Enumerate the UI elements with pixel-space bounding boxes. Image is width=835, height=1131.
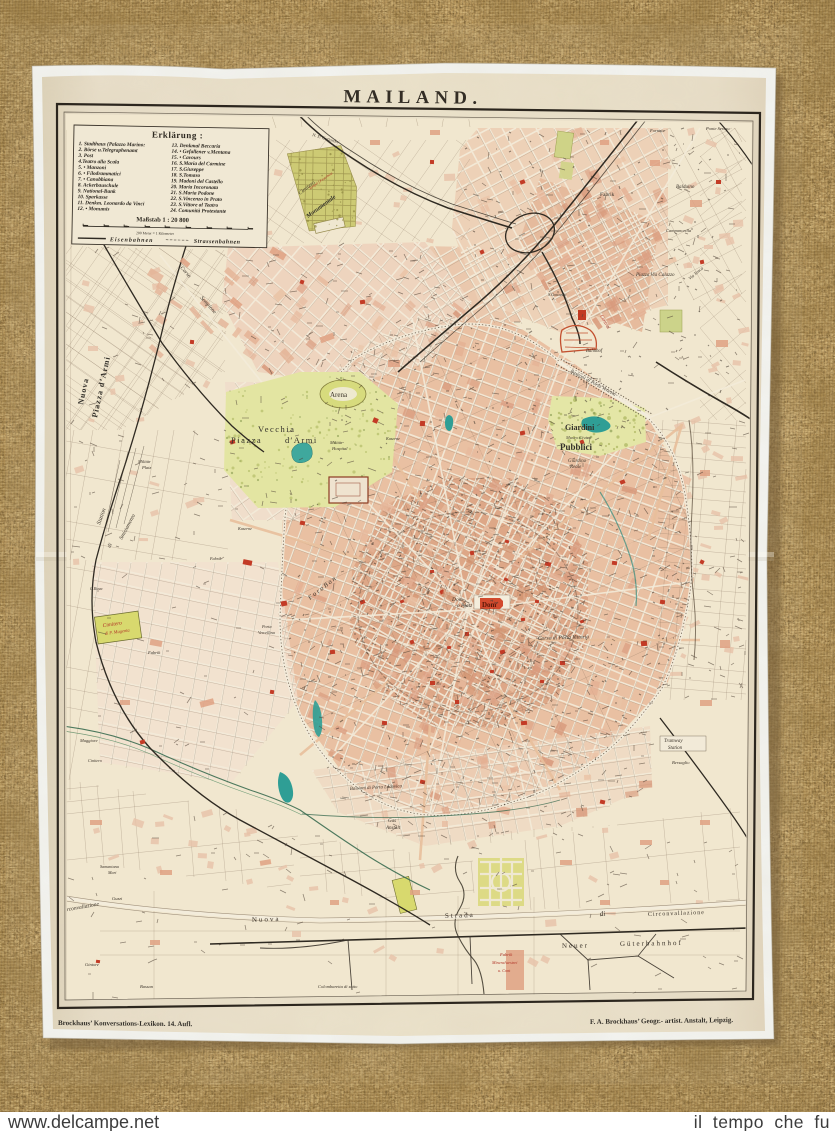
svg-text:Militär: Militär — [137, 459, 151, 464]
svg-text:MAILAND.: MAILAND. — [343, 87, 482, 109]
svg-text:Colombaretta di sotto: Colombaretta di sotto — [318, 984, 358, 989]
svg-text:www.delcampe.net: www.delcampe.net — [7, 1112, 159, 1131]
svg-text:Maßstab 1 : 20 800: Maßstab 1 : 20 800 — [136, 216, 189, 224]
svg-text:Kaserne: Kaserne — [385, 436, 400, 441]
svg-text:Mari: Mari — [107, 870, 117, 875]
svg-text:Strada: Strada — [445, 911, 475, 920]
svg-text:Fabrik: Fabrik — [147, 650, 161, 655]
svg-text:Mineralwestrei: Mineralwestrei — [491, 960, 518, 965]
svg-text:Brockhaus’ Konversations-Lexik: Brockhaus’ Konversations-Lexikon. 14. Au… — [58, 1019, 193, 1028]
svg-text:Militär-: Militär- — [329, 440, 345, 445]
svg-text:C.Rova: C.Rova — [90, 586, 102, 591]
svg-text:Erklärung :: Erklärung : — [152, 129, 203, 140]
svg-text:Balduino: Balduino — [676, 185, 695, 190]
svg-text:12. • Monumis: 12. • Monumis — [77, 206, 109, 213]
svg-text:il tempo che fu: il tempo che fu — [694, 1112, 830, 1131]
svg-text:Kaserne: Kaserne — [237, 526, 252, 531]
svg-text:Fabrik: Fabrik — [499, 952, 513, 957]
svg-text:Giardino: Giardino — [568, 459, 587, 464]
svg-text:Ponte Sereso: Ponte Sereso — [705, 126, 730, 131]
svg-text:Gintore: Gintore — [85, 962, 99, 967]
svg-text:S.Gottardo: S.Gottardo — [548, 292, 566, 297]
svg-text:Bersaglio: Bersaglio — [672, 760, 690, 765]
svg-text:Strassenbahnen: Strassenbahnen — [194, 239, 241, 246]
svg-text:Nuova: Nuova — [252, 915, 281, 924]
svg-text:Platz: Platz — [141, 465, 151, 470]
svg-text:Campanorilla: Campanorilla — [666, 228, 692, 233]
svg-text:Tramway: Tramway — [664, 739, 683, 744]
svg-text:d'Armi: d'Armi — [285, 435, 318, 445]
svg-text:Reale: Reale — [569, 465, 582, 470]
svg-text:Giardini: Giardini — [565, 423, 595, 432]
svg-text:24. Comunità Protestante: 24. Comunità Protestante — [169, 208, 227, 215]
svg-text:u. Cont: u. Cont — [498, 968, 511, 973]
svg-text:Pubblici: Pubblici — [560, 442, 593, 452]
svg-text:Hospital: Hospital — [331, 446, 348, 451]
svg-text:Bahnhof: Bahnhof — [586, 349, 603, 354]
svg-text:Cinitero: Cinitero — [88, 758, 102, 763]
svg-text:Maggiore: Maggiore — [79, 738, 98, 743]
svg-text:Neuer: Neuer — [562, 942, 589, 950]
svg-text:Fabrik: Fabrik — [209, 556, 222, 561]
svg-text:Piazza Via Calazzo: Piazza Via Calazzo — [635, 273, 675, 278]
svg-text:Fabrik: Fabrik — [600, 192, 615, 198]
svg-text:Guzzi: Guzzi — [112, 896, 123, 901]
svg-text:Bassan: Bassan — [140, 984, 154, 989]
svg-text:200 Meter = 1 Kilometer: 200 Meter = 1 Kilometer — [136, 231, 175, 236]
svg-text:Vercellina: Vercellina — [258, 630, 275, 635]
svg-text:Anstalt: Anstalt — [385, 826, 401, 831]
svg-text:Samantana: Samantana — [100, 864, 119, 869]
svg-text:-o Platz: -o Platz — [455, 603, 473, 609]
svg-text:Vecchia: Vecchia — [258, 424, 295, 434]
svg-text:di: di — [600, 910, 606, 918]
svg-text:Eisenbahnen: Eisenbahnen — [109, 237, 154, 244]
svg-text:Porta: Porta — [261, 624, 272, 629]
svg-text:Güterbahnhof: Güterbahnhof — [620, 939, 683, 948]
svg-text:Station: Station — [668, 746, 683, 751]
svg-text:Arena: Arena — [330, 391, 348, 399]
svg-text:Fornace: Fornace — [649, 128, 665, 133]
svg-text:Piazza: Piazza — [231, 435, 262, 445]
svg-text:Museo Civico: Museo Civico — [565, 435, 592, 440]
svg-text:Gas: Gas — [388, 819, 396, 824]
